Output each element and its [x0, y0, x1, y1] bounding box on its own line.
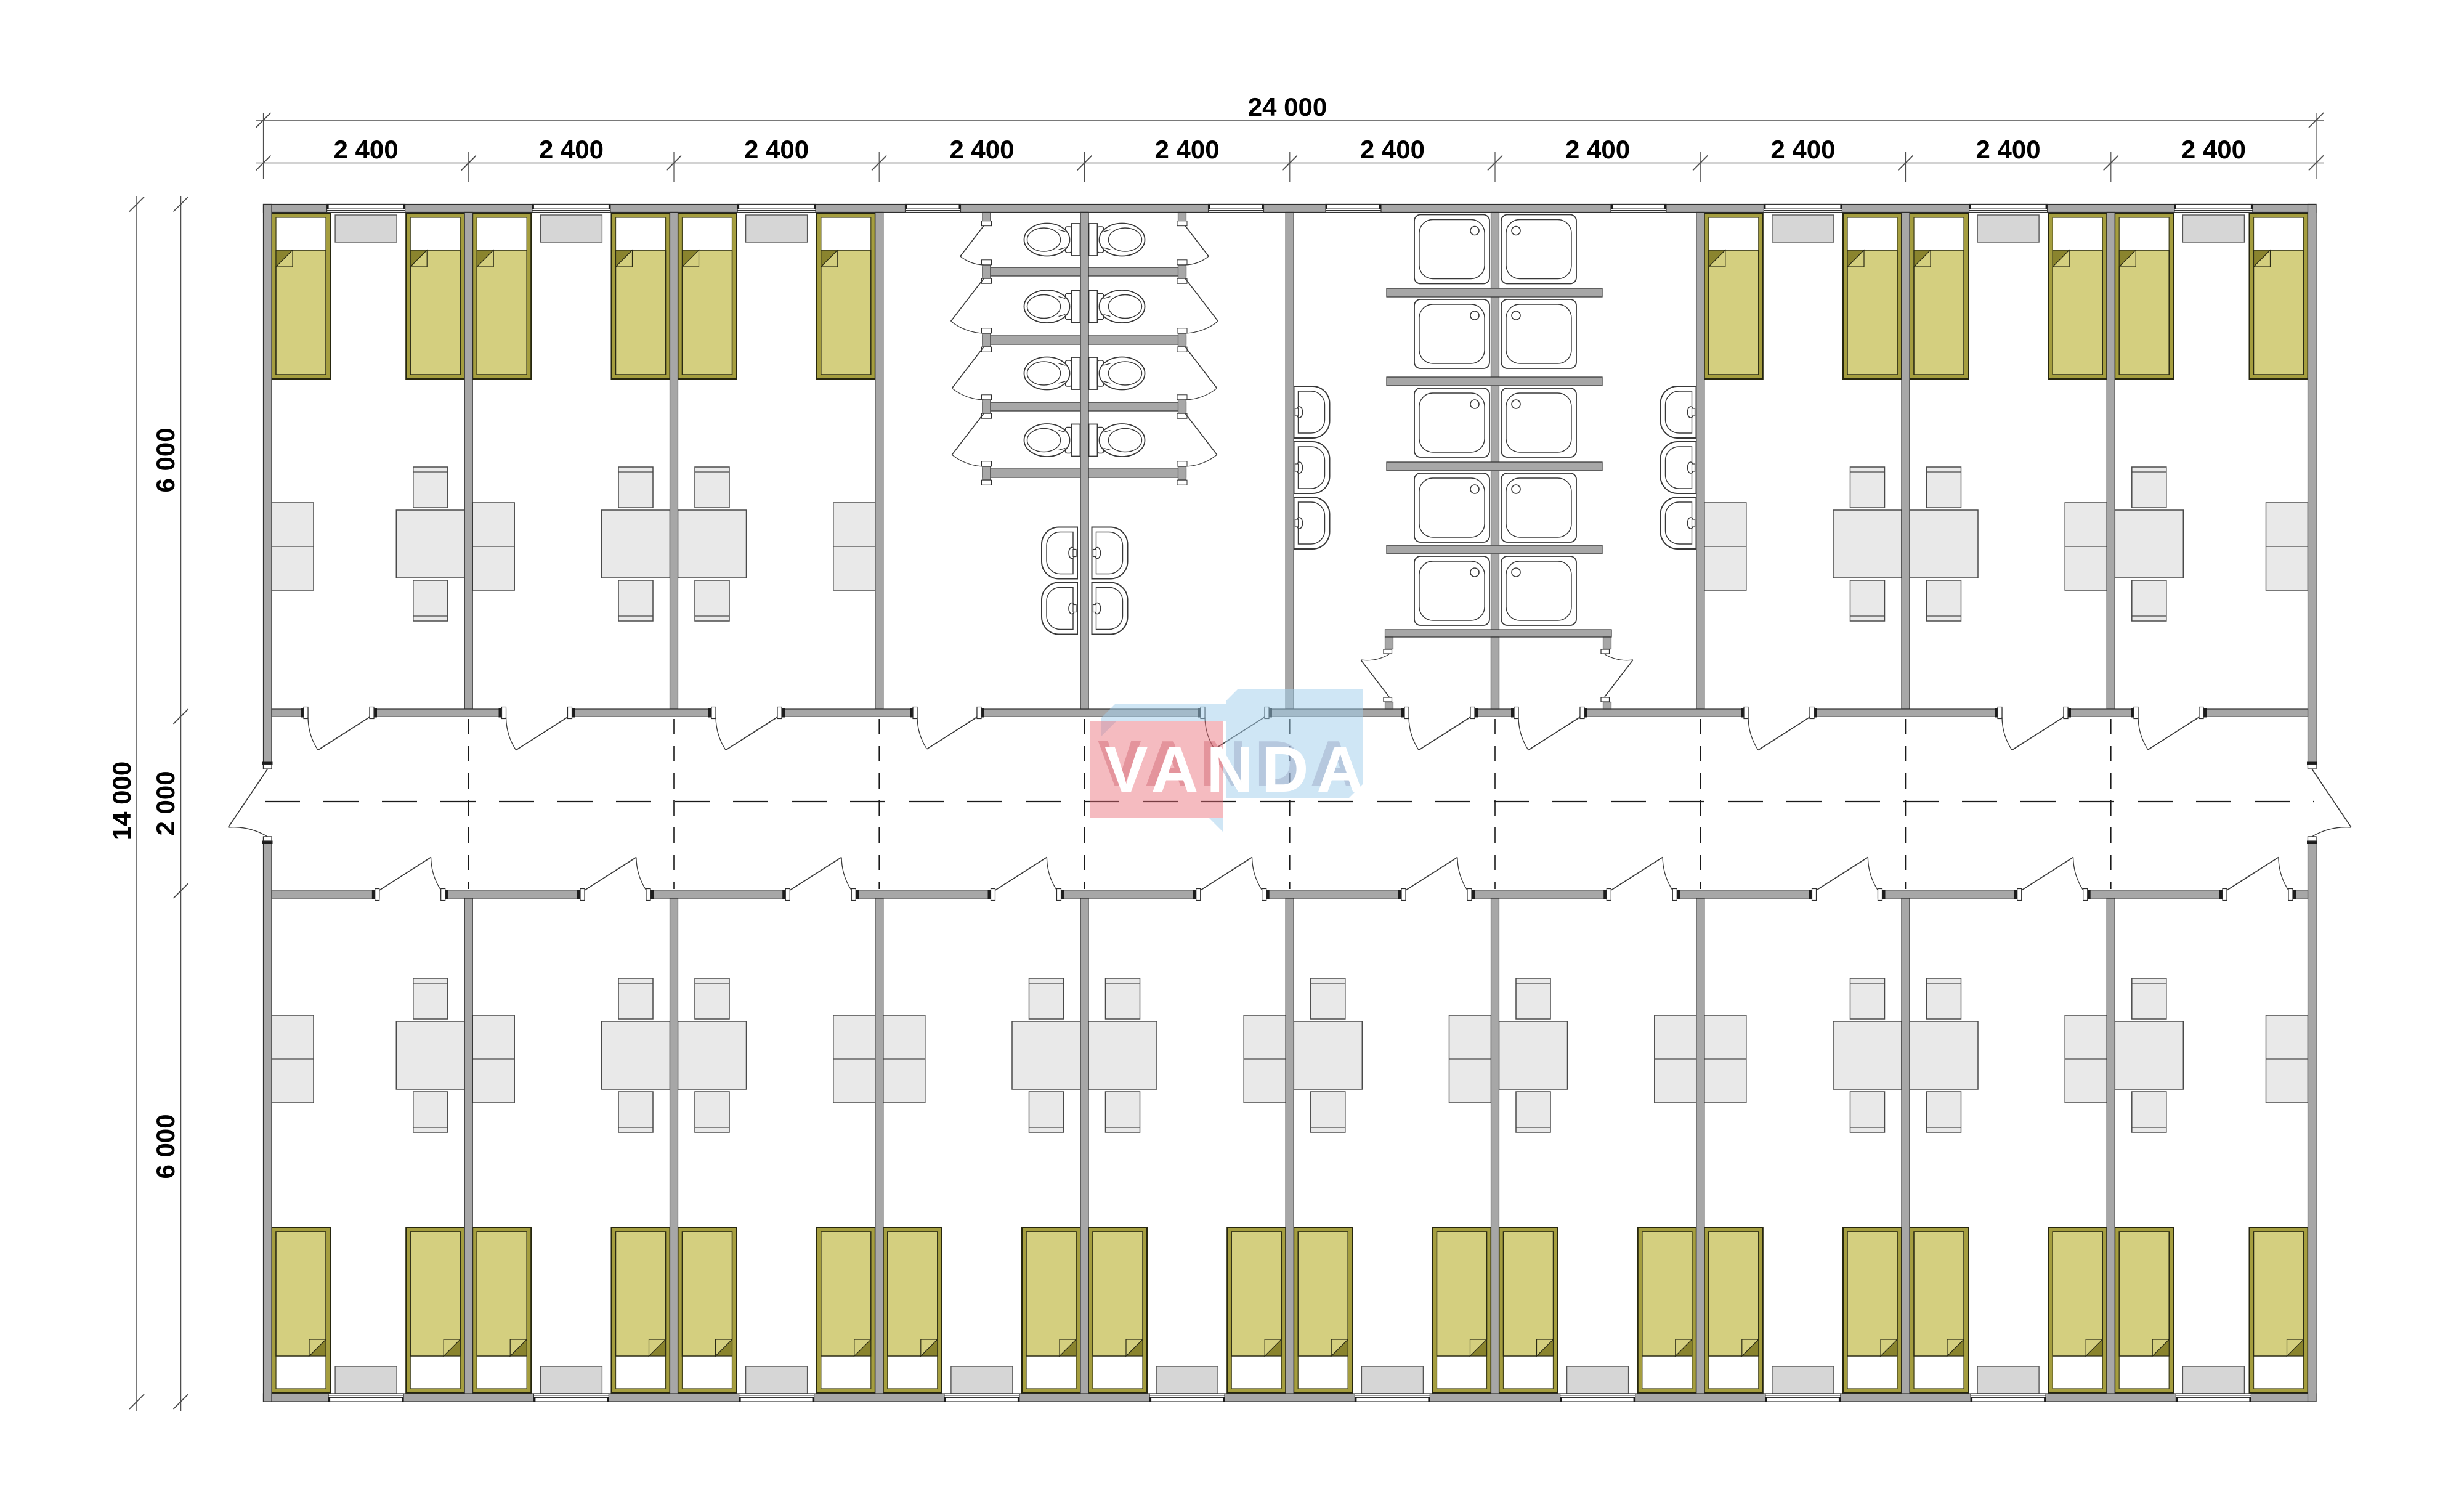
svg-text:14 000: 14 000: [107, 761, 136, 840]
svg-text:2 400: 2 400: [539, 135, 604, 164]
svg-text:24 000: 24 000: [1248, 92, 1327, 121]
svg-text:VANDA: VANDA: [1104, 733, 1372, 806]
svg-text:2 400: 2 400: [1770, 135, 1835, 164]
svg-text:2 400: 2 400: [334, 135, 399, 164]
svg-text:6 000: 6 000: [151, 1114, 180, 1179]
svg-text:6 000: 6 000: [151, 428, 180, 492]
svg-text:2 000: 2 000: [151, 771, 180, 835]
svg-text:2 400: 2 400: [2181, 135, 2246, 164]
svg-text:2 400: 2 400: [1155, 135, 1220, 164]
svg-text:2 400: 2 400: [1976, 135, 2041, 164]
svg-text:2 400: 2 400: [949, 135, 1014, 164]
svg-text:2 400: 2 400: [744, 135, 809, 164]
svg-text:2 400: 2 400: [1360, 135, 1425, 164]
svg-text:2 400: 2 400: [1565, 135, 1630, 164]
